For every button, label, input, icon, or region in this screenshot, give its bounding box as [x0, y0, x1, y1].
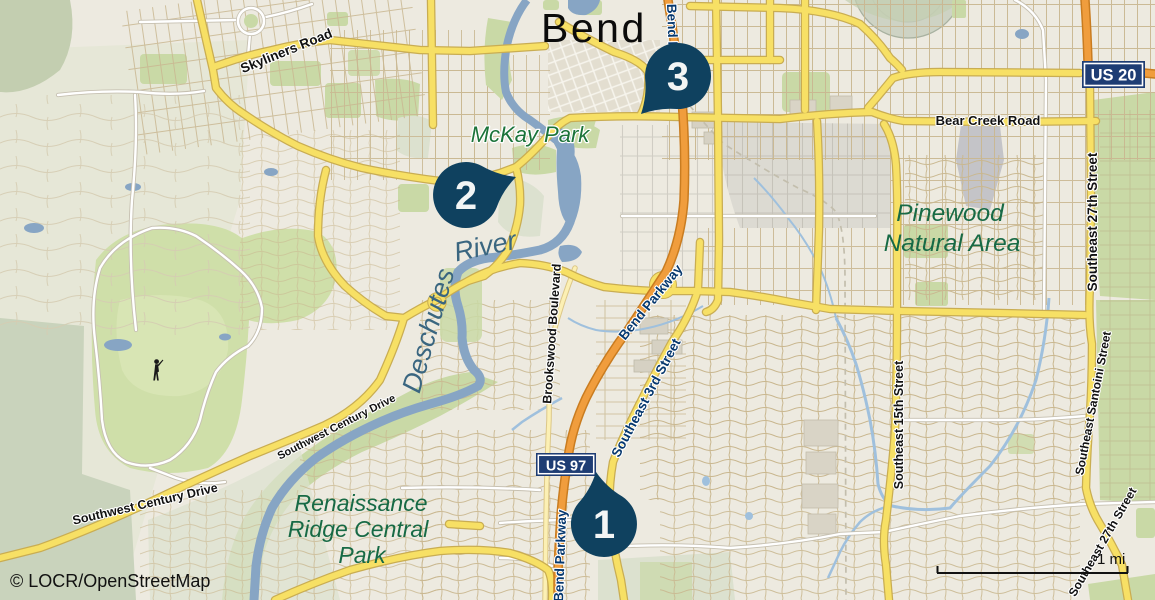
- svg-text:Bear Creek Road: Bear Creek Road: [936, 113, 1041, 128]
- svg-text:3: 3: [667, 55, 689, 99]
- svg-text:Southeast 15th Street: Southeast 15th Street: [892, 360, 906, 489]
- svg-text:US 97: US 97: [546, 459, 586, 475]
- svg-text:US 20: US 20: [1091, 67, 1137, 85]
- svg-text:Bend Parkway: Bend Parkway: [551, 509, 569, 600]
- svg-text:1 mi: 1 mi: [1097, 551, 1125, 568]
- svg-text:1: 1: [593, 503, 615, 547]
- svg-text:Pinewood: Pinewood: [896, 200, 1005, 227]
- svg-text:© LOCR/OpenStreetMap: © LOCR/OpenStreetMap: [10, 571, 210, 591]
- svg-text:Park: Park: [338, 542, 387, 568]
- svg-text:Ridge Central: Ridge Central: [288, 516, 430, 542]
- svg-text:Bend: Bend: [541, 5, 647, 51]
- svg-text:Natural Area: Natural Area: [884, 230, 1021, 257]
- svg-text:2: 2: [455, 174, 477, 218]
- svg-text:Renaissance: Renaissance: [295, 490, 428, 516]
- svg-text:McKay Park: McKay Park: [471, 122, 591, 147]
- svg-text:Southeast 27th Street: Southeast 27th Street: [1085, 152, 1100, 291]
